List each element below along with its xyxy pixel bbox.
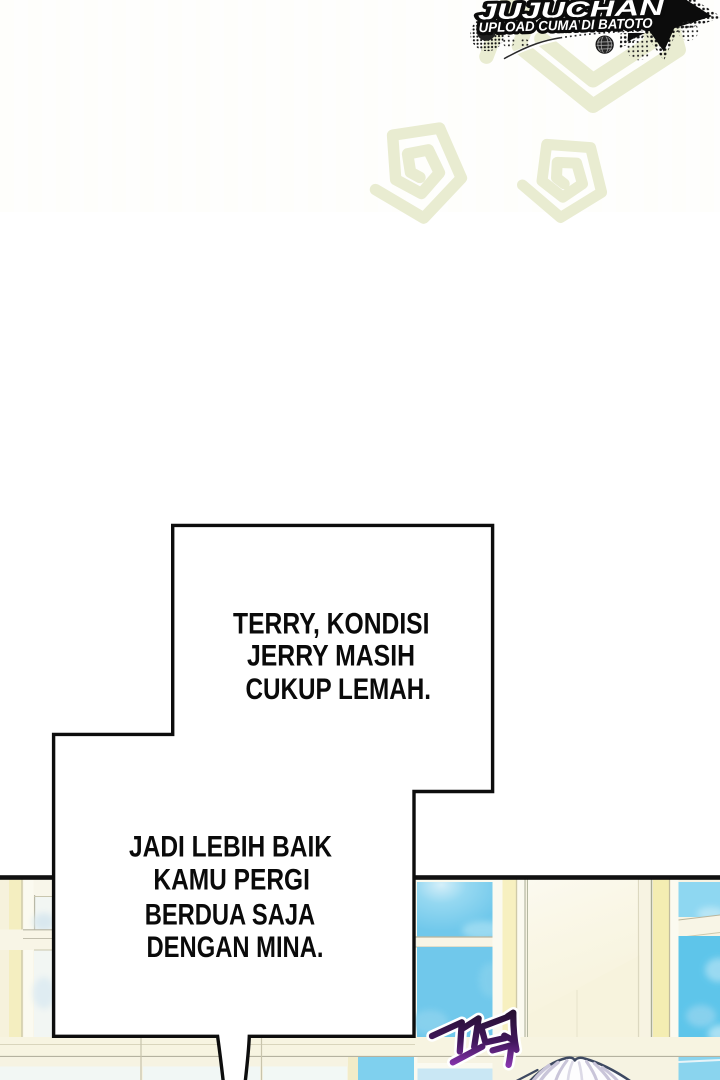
svg-text:TERRY, KONDISI: TERRY, KONDISI	[233, 607, 430, 640]
svg-text:DENGAN MINA.: DENGAN MINA.	[147, 931, 324, 964]
svg-text:CUKUP LEMAH.: CUKUP LEMAH.	[246, 673, 432, 706]
svg-text:JERRY MASIH: JERRY MASIH	[247, 640, 415, 673]
svg-text:BERDUA SAJA: BERDUA SAJA	[145, 898, 316, 931]
svg-text:KAMU PERGI: KAMU PERGI	[153, 864, 310, 897]
svg-text:JADI LEBIH BAIK: JADI LEBIH BAIK	[129, 831, 332, 864]
